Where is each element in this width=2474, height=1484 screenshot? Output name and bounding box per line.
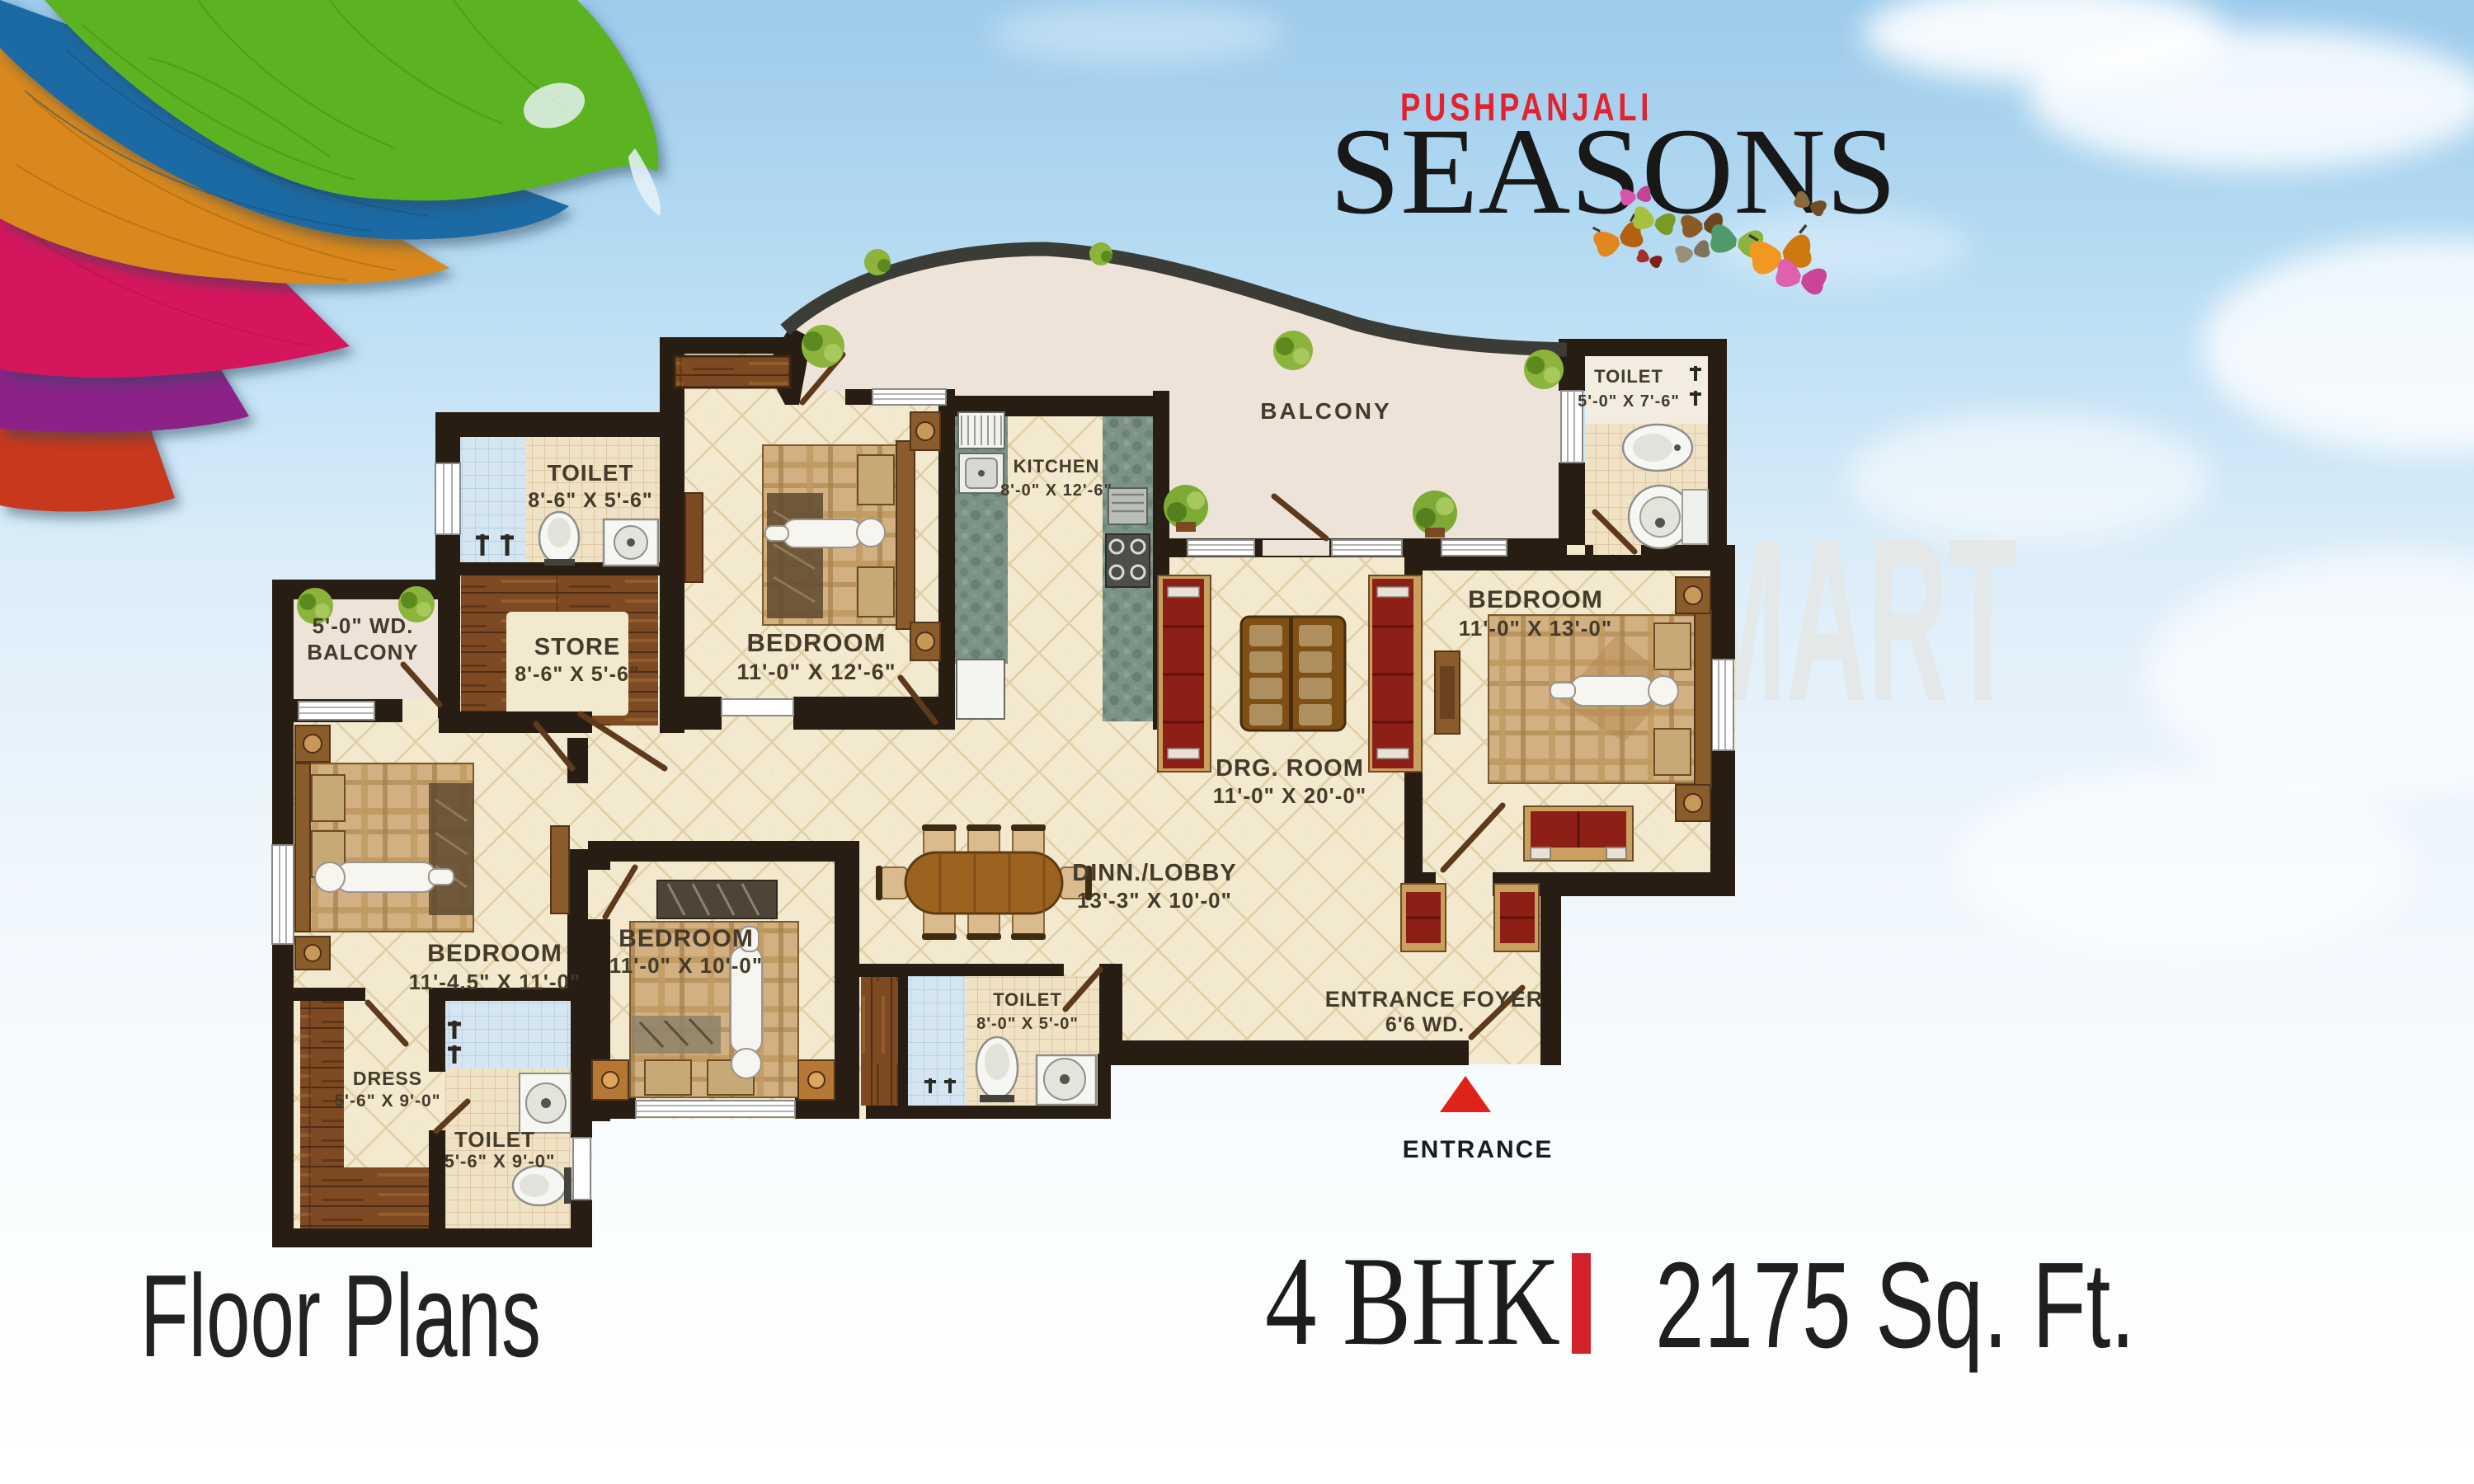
svg-text:5'-0" X 7'-6": 5'-0" X 7'-6"	[1578, 392, 1680, 411]
svg-text:TOILET: TOILET	[1594, 366, 1663, 387]
svg-text:8'-6" X 5'-6": 8'-6" X 5'-6"	[515, 663, 639, 686]
svg-text:5'-6" X 9'-0": 5'-6" X 9'-0"	[444, 1151, 556, 1172]
svg-text:TOILET: TOILET	[993, 989, 1062, 1010]
svg-text:2175 Sq. Ft.: 2175 Sq. Ft.	[1655, 1237, 2135, 1374]
svg-text:KITCHEN: KITCHEN	[1014, 456, 1100, 477]
svg-text:ENTRANCE: ENTRANCE	[1403, 1136, 1554, 1163]
svg-text:SEASONS: SEASONS	[1329, 103, 1897, 240]
svg-text:BEDROOM: BEDROOM	[427, 940, 562, 967]
svg-text:5'-6" X 9'-0": 5'-6" X 9'-0"	[334, 1092, 440, 1111]
svg-text:8'-0" X 5'-0": 8'-0" X 5'-0"	[976, 1015, 1079, 1033]
svg-text:11'-0" X 20'-0": 11'-0" X 20'-0"	[1213, 783, 1366, 808]
svg-text:DRESS: DRESS	[353, 1068, 422, 1089]
svg-text:5'-0" WD.: 5'-0" WD.	[313, 613, 414, 638]
svg-text:BEDROOM: BEDROOM	[1468, 586, 1603, 613]
svg-text:BALCONY: BALCONY	[307, 640, 419, 665]
svg-text:8'-0" X 12'-6": 8'-0" X 12'-6"	[1000, 481, 1112, 500]
svg-text:11'-0" X 12'-6": 11'-0" X 12'-6"	[736, 660, 896, 684]
svg-text:DRG. ROOM: DRG. ROOM	[1216, 755, 1364, 782]
svg-text:11'-0" X 10'-0": 11'-0" X 10'-0"	[609, 953, 763, 978]
svg-text:Floor Plans: Floor Plans	[140, 1251, 541, 1382]
svg-text:BEDROOM: BEDROOM	[618, 925, 754, 952]
svg-text:13'-3" X 10'-0": 13'-3" X 10'-0"	[1077, 888, 1232, 913]
svg-text:STORE: STORE	[534, 634, 620, 660]
svg-text:4 BHK: 4 BHK	[1265, 1230, 1560, 1372]
svg-text:DINN./LOBBY: DINN./LOBBY	[1072, 860, 1237, 886]
svg-text:11'-0" X 13'-0": 11'-0" X 13'-0"	[1459, 616, 1612, 641]
svg-text:BALCONY: BALCONY	[1260, 398, 1391, 424]
svg-text:ENTRANCE FOYER: ENTRANCE FOYER	[1325, 987, 1544, 1012]
svg-text:6'6 WD.: 6'6 WD.	[1385, 1013, 1465, 1036]
svg-text:8'-6" X 5'-6": 8'-6" X 5'-6"	[528, 489, 652, 512]
svg-text:TOILET: TOILET	[547, 460, 633, 486]
svg-text:TOILET: TOILET	[454, 1127, 535, 1152]
svg-text:11'-4.5" X 11'-0": 11'-4.5" X 11'-0"	[409, 970, 581, 994]
svg-text:BEDROOM: BEDROOM	[747, 628, 887, 657]
